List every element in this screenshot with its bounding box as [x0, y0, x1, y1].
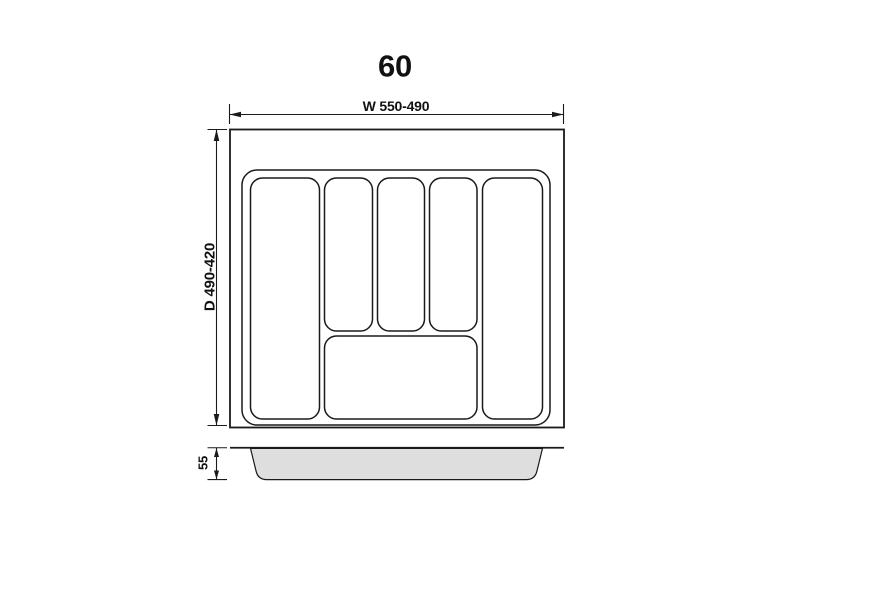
compartment-right [483, 178, 543, 419]
height-dimension [208, 448, 228, 480]
cutlery-tray-technical-drawing: 60 W 550-490 D 490-420 55 H [0, 0, 871, 600]
depth-arrow-bottom [214, 414, 220, 426]
height-arrow-top [214, 448, 219, 457]
tray-side-profile [251, 448, 543, 479]
compartment-top-2 [378, 178, 425, 331]
height-arrow-bottom [214, 471, 219, 480]
width-dimension [230, 104, 564, 124]
compartment-top-3 [430, 178, 478, 331]
compartment-top-1 [325, 178, 373, 331]
width-arrow-left [230, 112, 242, 118]
compartment-frame [242, 170, 550, 425]
tray-outline [230, 130, 564, 428]
drawing-linework [0, 0, 871, 600]
depth-arrow-top [214, 130, 220, 142]
compartment-left [251, 178, 320, 419]
width-arrow-right [552, 112, 564, 118]
tray-top-view [230, 130, 564, 428]
compartment-bottom-wide [325, 336, 478, 419]
tray-side-view [230, 448, 564, 480]
depth-dimension [208, 130, 228, 426]
